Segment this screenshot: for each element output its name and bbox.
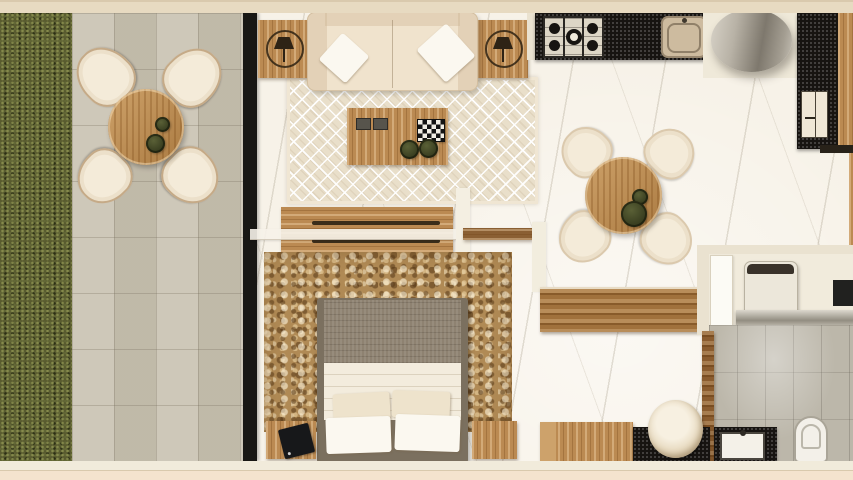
floor-plan <box>0 0 853 480</box>
lamp-icon <box>266 30 304 68</box>
console-handle-top <box>312 221 440 225</box>
wall-shelf <box>463 228 532 240</box>
bottom-boundary-band <box>0 470 853 480</box>
bathroom-faucet <box>740 430 746 436</box>
kitchen-faucet <box>682 18 687 23</box>
table-bowl-2 <box>419 139 438 158</box>
vanity-light-panel <box>540 422 556 463</box>
washer-control-panel <box>747 264 794 274</box>
nightstand-right <box>472 421 517 459</box>
lamp-icon <box>485 30 523 68</box>
cooktop-module-center <box>565 18 585 56</box>
washing-machine <box>744 261 798 315</box>
pass-through-ledge <box>250 229 456 240</box>
bathroom-door <box>710 255 733 331</box>
vessel-basin <box>648 400 703 458</box>
bathroom-top-wall <box>697 245 853 254</box>
kitchen-sink <box>661 16 707 58</box>
cylindrical-column <box>711 9 792 72</box>
bottom-wall-strip <box>0 461 853 470</box>
passage-wall-band <box>456 188 470 258</box>
top-boundary-band <box>0 0 853 13</box>
side-table-right <box>477 20 528 78</box>
wall-mirror <box>833 280 853 306</box>
wardrobe-door-panel <box>801 91 828 138</box>
bathroom-sink <box>720 432 765 460</box>
credenza <box>540 287 700 332</box>
wardrobe-base-strip <box>820 145 853 153</box>
cooktop-module-right <box>584 18 602 56</box>
cooktop-module-left <box>545 18 565 56</box>
sofa-seat-split <box>392 20 393 88</box>
cooktop <box>543 16 604 58</box>
toilet <box>794 416 828 463</box>
bed-pillow-front-right <box>394 414 460 452</box>
bed-pillow-front-left <box>325 416 391 454</box>
lamp-stem-icon <box>502 49 504 62</box>
dining-plate-large <box>621 201 647 227</box>
lamp-stem-icon <box>283 49 285 62</box>
bed-blanket <box>324 300 461 363</box>
bathroom-left-wall <box>697 245 709 335</box>
wardrobe-wood-side <box>838 13 853 149</box>
terrace-plate-large <box>146 134 165 153</box>
side-table-left <box>258 20 310 78</box>
bathroom-counter-bar <box>736 310 853 325</box>
garden-grass <box>0 13 72 461</box>
remote-2 <box>373 118 388 130</box>
coffee-table <box>347 108 448 165</box>
kitchen-wall-sliver <box>527 13 535 60</box>
terrace-plate-small <box>155 117 170 132</box>
terrace-table <box>108 89 184 165</box>
mid-wall-band <box>532 222 546 292</box>
table-bowl-1 <box>400 140 419 159</box>
right-edge-wood-sliver <box>849 153 853 248</box>
bed <box>317 298 468 463</box>
remote-1 <box>356 118 371 130</box>
